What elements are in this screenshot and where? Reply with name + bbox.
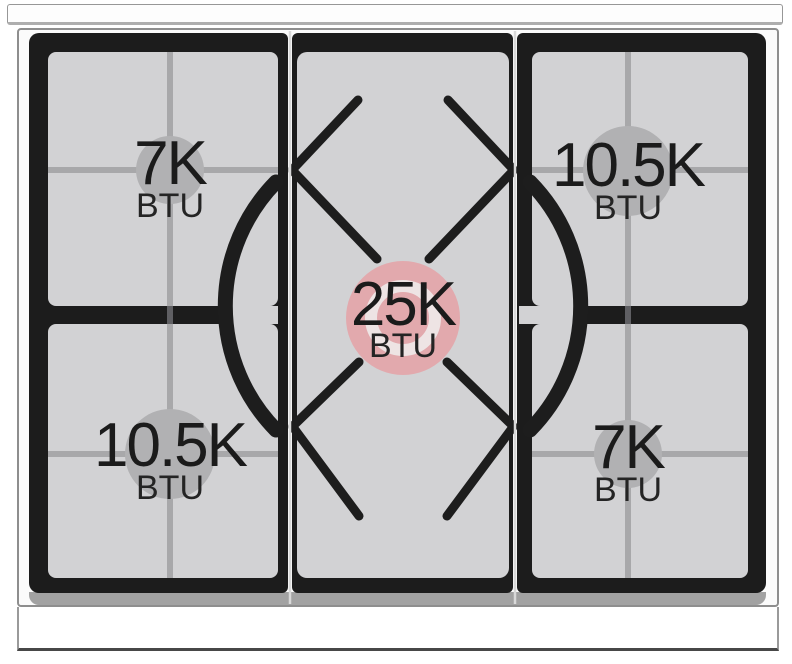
range-front-panel <box>17 607 779 651</box>
cooktop-diagram: 7K BTU 10.5K BTU 25K BTU 10.5K BTU 7K BT… <box>0 0 792 664</box>
cross-line-bar-segment-left <box>167 306 173 324</box>
burner-unit-center: BTU <box>273 326 533 366</box>
burner-unit-bottom-right: BTU <box>498 470 758 510</box>
burner-unit-top-right: BTU <box>498 188 758 228</box>
cross-line-bar-segment-right <box>625 306 631 324</box>
burner-unit-top-left: BTU <box>40 186 300 226</box>
cooktop-bottom-shadow <box>29 592 766 605</box>
cooktop-back-rail <box>7 4 783 25</box>
surface-connector-left <box>228 306 278 324</box>
burner-unit-bottom-left: BTU <box>40 468 300 508</box>
